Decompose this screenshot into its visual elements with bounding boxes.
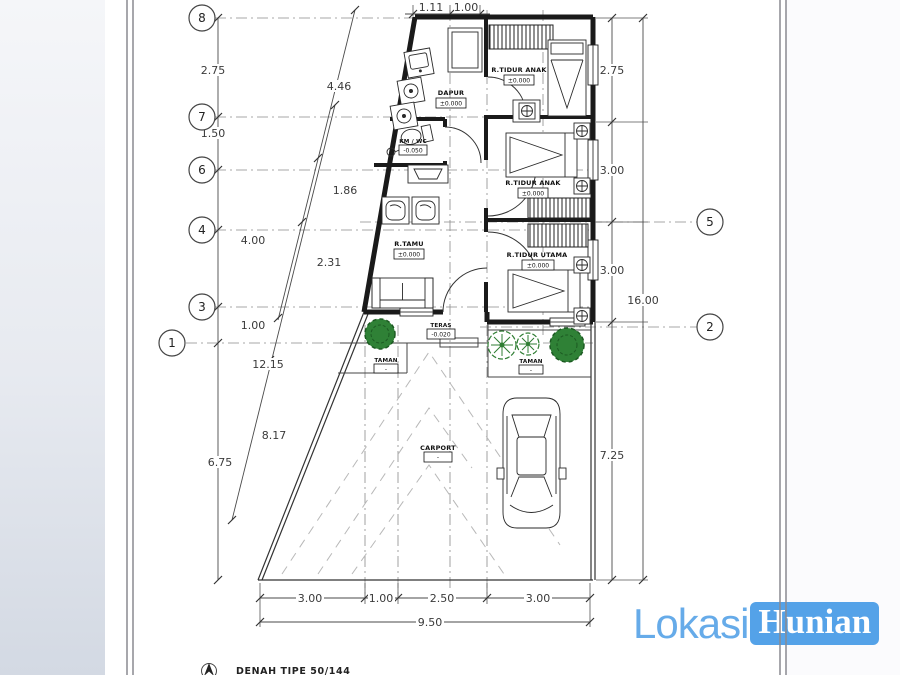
dim-bottom-4: 3.00 xyxy=(526,592,551,605)
room-elevation: ±0.000 xyxy=(398,252,420,259)
dim-slant-4: 12.15 xyxy=(252,358,284,371)
room-label-tidur-anak-2: R.TIDUR ANAK ±0.000 xyxy=(505,179,561,198)
grid-bubble-1: 1 xyxy=(159,330,185,356)
north-arrow-icon xyxy=(202,663,217,675)
dim-right-total: 16.00 xyxy=(627,294,659,307)
room-elevation: - xyxy=(530,367,532,374)
grid-bubble-3: 3 xyxy=(189,294,215,320)
room-name: KM / WC xyxy=(399,139,427,145)
bed xyxy=(508,270,580,312)
bed xyxy=(548,40,586,116)
sheet-border-line xyxy=(785,0,787,675)
room-label-taman-left: TAMAN - xyxy=(374,358,398,373)
dim-top-1: 1.11 xyxy=(419,1,444,14)
dim-left-5: 6.75 xyxy=(208,456,233,469)
sheet-border-line xyxy=(132,0,134,675)
dim-slant-5: 8.17 xyxy=(262,429,287,442)
svg-text:3: 3 xyxy=(198,300,206,314)
room-label-tidur-anak-1: R.TIDUR ANAK ±0.000 xyxy=(491,66,547,85)
dim-right-1: 2.75 xyxy=(600,64,625,77)
svg-text:4: 4 xyxy=(198,223,206,237)
tv-console xyxy=(408,165,448,183)
dim-left-1: 2.75 xyxy=(201,64,226,77)
room-name: TAMAN xyxy=(374,358,397,364)
svg-text:7: 7 xyxy=(198,110,206,124)
flower-icon xyxy=(517,333,539,355)
room-name: R.TAMU xyxy=(394,240,424,248)
dim-slant-1: 4.46 xyxy=(327,80,352,93)
dim-bottom-3: 2.50 xyxy=(430,592,455,605)
dim-right-4: 7.25 xyxy=(600,449,625,462)
watermark-text-light: Lokasi xyxy=(633,603,748,645)
room-label-km-wc: KM / WC -0.050 xyxy=(399,139,427,155)
svg-text:8: 8 xyxy=(198,11,206,25)
grid-bubble-6: 6 xyxy=(189,157,215,183)
room-label-tamu: R.TAMU ±0.000 xyxy=(394,240,424,259)
grid-bubble-4: 4 xyxy=(189,217,215,243)
room-name: CARPORT xyxy=(420,444,456,452)
room-name: DAPUR xyxy=(438,89,464,97)
cabinet xyxy=(448,28,482,72)
room-label-dapur: DAPUR ±0.000 xyxy=(436,89,466,108)
grid-bubble-5: 5 xyxy=(697,209,723,235)
dim-right-3: 3.00 xyxy=(600,264,625,277)
room-elevation: -0.050 xyxy=(403,148,423,155)
dim-slant-3: 2.31 xyxy=(317,256,342,269)
watermark-badge: Hunian xyxy=(750,602,879,645)
room-elevation: ±0.000 xyxy=(527,263,549,270)
grid-bubble-2: 2 xyxy=(697,314,723,340)
dim-bottom-2: 1.00 xyxy=(369,592,394,605)
room-name: TERAS xyxy=(430,323,451,329)
room-name: TAMAN xyxy=(519,359,542,365)
dim-bottom-1: 3.00 xyxy=(298,592,323,605)
bed xyxy=(506,133,577,177)
room-elevation: -0.020 xyxy=(431,332,451,339)
floorplan-drawing: 1.11 1.00 2.75 1.50 4.00 1.00 6.75 4.46 … xyxy=(0,0,900,675)
tree-icon xyxy=(550,328,584,362)
sheet-border-line xyxy=(126,0,128,675)
dim-left-4: 1.00 xyxy=(241,319,266,332)
room-elevation: - xyxy=(437,455,439,462)
room-label-carport: CARPORT - xyxy=(420,444,456,462)
sofa xyxy=(372,278,433,308)
room-elevation: ±0.000 xyxy=(522,191,544,198)
room-name: R.TIDUR ANAK xyxy=(491,66,547,74)
room-label-teras: TERAS -0.020 xyxy=(427,323,455,339)
car-icon xyxy=(497,398,566,528)
armchair xyxy=(382,197,409,224)
room-name: R.TIDUR ANAK xyxy=(505,179,561,187)
dim-left-3: 4.00 xyxy=(241,234,266,247)
grid-bubble-7: 7 xyxy=(189,104,215,130)
room-label-taman-right: TAMAN - xyxy=(519,359,543,374)
room-name: R.TIDUR UTAMA xyxy=(507,251,568,259)
dim-slant-2: 1.86 xyxy=(333,184,358,197)
watermark: Lokasi Hunian xyxy=(633,602,879,645)
svg-text:1: 1 xyxy=(168,336,176,350)
svg-text:6: 6 xyxy=(198,163,206,177)
room-elevation: ±0.000 xyxy=(508,78,530,85)
tree-icon xyxy=(365,319,395,349)
title-block: DENAH TIPE 50/144 xyxy=(202,663,351,675)
dim-right-2: 3.00 xyxy=(600,164,625,177)
svg-text:2: 2 xyxy=(706,320,714,334)
drawing-title: DENAH TIPE 50/144 xyxy=(236,666,350,675)
dim-top-2: 1.00 xyxy=(454,1,479,14)
grid-bubble-8: 8 xyxy=(189,5,215,31)
room-elevation: - xyxy=(385,366,387,373)
room-elevation: ±0.000 xyxy=(440,101,462,108)
svg-text:5: 5 xyxy=(706,215,714,229)
flower-icon xyxy=(488,331,516,359)
dim-bottom-total: 9.50 xyxy=(418,616,443,629)
room-label-tidur-utama: R.TIDUR UTAMA ±0.000 xyxy=(507,251,568,270)
armchair xyxy=(412,197,439,224)
sheet-border-line xyxy=(779,0,781,675)
